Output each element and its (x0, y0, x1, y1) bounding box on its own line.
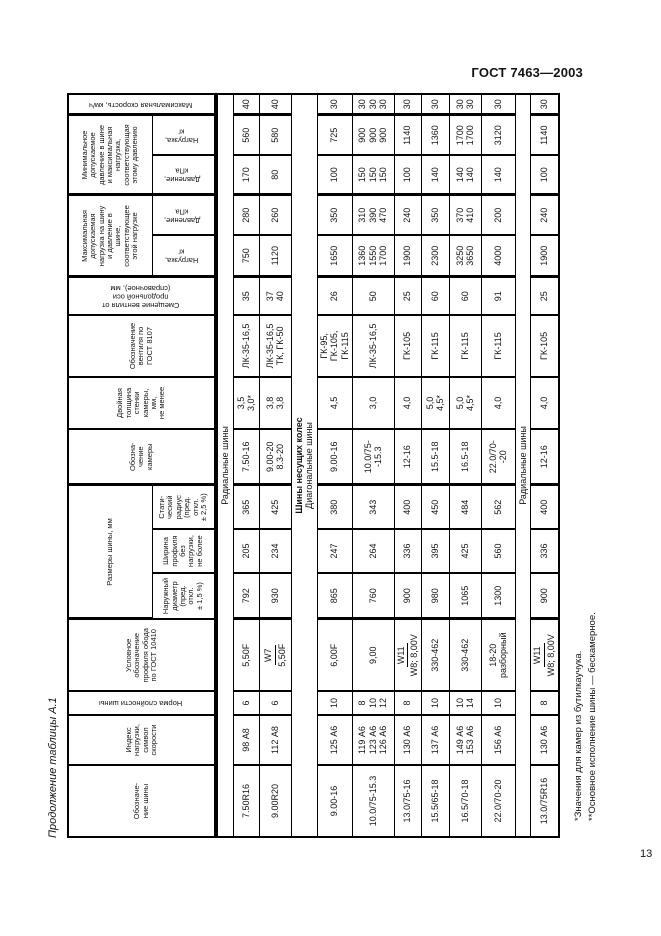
table-row: 16.5/70-18149 А6 153 А610 14330-46210654… (449, 94, 481, 837)
cell: 750 (233, 235, 259, 277)
standard-reference: ГОСТ 7463—2003 (0, 65, 583, 80)
cell: W75,50F (259, 619, 291, 691)
cell: 350 (421, 195, 449, 235)
cell: 130 А6 (531, 715, 559, 765)
cell: 9,00 (352, 619, 394, 691)
cell: 60 (421, 277, 449, 315)
cell: W11W8; 8,00V (394, 619, 421, 691)
section-row: Радиальные шины (515, 94, 531, 837)
cell: 15.5/65-18 (421, 765, 449, 837)
cell: 1700 1700 (449, 115, 481, 155)
footnotes: *Значения для камер из бутилкаучука. **О… (572, 94, 601, 838)
cell: 1900 (394, 235, 421, 277)
cell: 170 (233, 155, 259, 195)
cell: 205 (233, 529, 259, 573)
cell: 3,0 (352, 377, 394, 429)
cell: 60 (449, 277, 481, 315)
cell: 240 (531, 195, 559, 235)
table-row: 7.50R1698 А865,50F7922053657.50-163,5 3,… (233, 94, 259, 837)
cell: 930 (259, 573, 291, 619)
cell: 5,0 4,5* (421, 377, 449, 429)
section-row: Шины несущих колесДиагональные шины (291, 94, 317, 837)
cell: 1300 (481, 573, 515, 619)
cell: 26 (317, 277, 352, 315)
cell: 15.5-18 (421, 429, 449, 485)
header-min-load-kg: Нагрузка, кг (152, 115, 216, 155)
cell: 10 (481, 691, 515, 715)
cell: 4,0 (394, 377, 421, 429)
header-min-pressure-group: Минимальное допускаемое давление в шине … (68, 115, 152, 195)
cell: 310 390 470 (352, 195, 394, 235)
cell: 725 (317, 115, 352, 155)
cell: 336 (531, 529, 559, 573)
cell: 22.0/70-20 (481, 765, 515, 837)
tire-spec-table: Обозначе- ние шины Индекс нагрузки, симв… (67, 93, 560, 838)
cell: 125 А6 (317, 715, 352, 765)
cell: 150 150 150 (352, 155, 394, 195)
cell: 3120 (481, 115, 515, 155)
header-rim-profile: Условное обозначение профиля обода по ГО… (68, 619, 216, 691)
header-tire-designation: Обозначе- ние шины (68, 765, 216, 837)
cell: 130 А6 (394, 715, 421, 765)
cell: 1900 (531, 235, 559, 277)
cell: 240 (394, 195, 421, 235)
footnote-tubeless: **Основное исполнение шины — бескамерное… (586, 94, 601, 821)
table-row: 15.5/65-18137 А610330-46298039545015.5-1… (421, 94, 449, 837)
cell: 9.00-16 (317, 429, 352, 485)
table-row: 22.0/70-20156 А61018-20 разборный1300560… (481, 94, 515, 837)
table-body: Радиальные шины7.50R1698 А865,50F7922053… (216, 94, 559, 837)
cell: 25 (394, 277, 421, 315)
cell: 2300 (421, 235, 449, 277)
cell: 4,5 (317, 377, 352, 429)
cell: 98 А8 (233, 715, 259, 765)
cell: ГК-95, ГК-105, ГК-115 (317, 315, 352, 377)
header-tube-designation: Обозна- чение камеры (68, 429, 216, 485)
cell: 7.50R16 (233, 765, 259, 837)
cell: 260 (259, 195, 291, 235)
cell: 13.0/75-16 (394, 765, 421, 837)
header-max-speed: Максимальная скорость, км/ч (68, 94, 216, 115)
cell: 40 (259, 94, 291, 115)
header-max-pressure-kpa: Давление, кПа (152, 195, 216, 235)
cell: 30 30 30 (352, 94, 394, 115)
section-row: Радиальные шины (216, 94, 233, 837)
cell: 450 (421, 485, 449, 529)
cell: 4,0 (531, 377, 559, 429)
cell: 264 (352, 529, 394, 573)
cell: 25 (531, 277, 559, 315)
cell: 1360 (421, 115, 449, 155)
cell: ГК-115 (449, 315, 481, 377)
cell: 792 (233, 573, 259, 619)
cell: 900 (531, 573, 559, 619)
cell: 3,5 3,0* (233, 377, 259, 429)
cell: 247 (317, 529, 352, 573)
cell: 7.50-16 (233, 429, 259, 485)
cell: 16.5/70-18 (449, 765, 481, 837)
cell: 760 (352, 573, 394, 619)
cell: 16.5-18 (449, 429, 481, 485)
cell: 560 (233, 115, 259, 155)
table-row: 10.0/75-15.3119 А6 123 А6 126 А68 10 129… (352, 94, 394, 837)
header-valve-offset: Смещение вентиля от продольной оси (спра… (68, 277, 216, 315)
cell: 6 (259, 691, 291, 715)
header-load-index: Индекс нагрузки, символ скорости (68, 715, 216, 765)
header-outer-diameter: Наружный диаметр (пред. откл. ± 1,5 %) (152, 573, 216, 619)
page-number: 13 (640, 848, 652, 860)
cell: 343 (352, 485, 394, 529)
cell: 200 (481, 195, 515, 235)
cell: 112 А8 (259, 715, 291, 765)
cell: 119 А6 123 А6 126 А6 (352, 715, 394, 765)
cell: 580 (259, 115, 291, 155)
table-row: 13.0/75R16130 А68W11W8; 8,00V90033640012… (531, 94, 559, 837)
cell: 100 (394, 155, 421, 195)
cell: 156 А6 (481, 715, 515, 765)
cell: ГК-105 (394, 315, 421, 377)
section-title: Шины несущих колесДиагональные шины (291, 94, 317, 837)
cell: 30 (481, 94, 515, 115)
cell: 234 (259, 529, 291, 573)
cell: 380 (317, 485, 352, 529)
cell: 30 30 (449, 94, 481, 115)
cell: 9.00R20 (259, 765, 291, 837)
cell: 10 (421, 691, 449, 715)
cell: 137 А6 (421, 715, 449, 765)
cell: 1065 (449, 573, 481, 619)
cell: 40 (233, 94, 259, 115)
cell: 484 (449, 485, 481, 529)
cell: 6,00F (317, 619, 352, 691)
cell: 8 10 12 (352, 691, 394, 715)
cell: 12-16 (531, 429, 559, 485)
cell: 5,0 4,5* (449, 377, 481, 429)
cell: 4,0 (481, 377, 515, 429)
cell: 4000 (481, 235, 515, 277)
cell: 30 (394, 94, 421, 115)
cell: 8 (394, 691, 421, 715)
cell: 10.0/75-15.3 (352, 765, 394, 837)
table-row: 13.0/75-16130 А68W11W8; 8,00V90033640012… (394, 94, 421, 837)
cell: 1120 (259, 235, 291, 277)
table-header: Обозначе- ние шины Индекс нагрузки, симв… (68, 94, 216, 837)
cell: 13.0/75R16 (531, 765, 559, 837)
cell: W11W8; 8,00V (531, 619, 559, 691)
cell: 10.0/75- -15.3 (352, 429, 394, 485)
cell: ЛК-35-16,5 (352, 315, 394, 377)
cell: 91 (481, 277, 515, 315)
cell: 1140 (394, 115, 421, 155)
cell: 400 (394, 485, 421, 529)
header-tire-dimensions-group: Размеры шины, мм (68, 485, 152, 619)
header-max-load-group: Максимальная допускаемая нагрузка на шин… (68, 195, 152, 277)
cell: ЛК-35-16,5 (233, 315, 259, 377)
cell: 18-20 разборный (481, 619, 515, 691)
cell: 50 (352, 277, 394, 315)
cell: 980 (421, 573, 449, 619)
footnote-butyl: *Значения для камер из бутилкаучука. (572, 94, 587, 821)
cell: 80 (259, 155, 291, 195)
cell: 30 (531, 94, 559, 115)
cell: 330-462 (421, 619, 449, 691)
cell: 900 900 900 (352, 115, 394, 155)
cell: 3,8 3,8 (259, 377, 291, 429)
table-caption: Продолжение таблицы А.1 (47, 94, 63, 838)
cell: 280 (233, 195, 259, 235)
cell: 365 (233, 485, 259, 529)
cell: 8 (531, 691, 559, 715)
cell: 3250 3650 (449, 235, 481, 277)
cell: 30 (421, 94, 449, 115)
cell: 400 (531, 485, 559, 529)
header-min-pressure-kpa: Давление, кПа (152, 155, 216, 195)
cell: 395 (421, 529, 449, 573)
cell: 10 14 (449, 691, 481, 715)
cell: 140 (421, 155, 449, 195)
cell: 140 140 (449, 155, 481, 195)
cell: 900 (394, 573, 421, 619)
cell: 100 (317, 155, 352, 195)
cell: 5,50F (233, 619, 259, 691)
cell: ЛК-35-16,5 ТК, ГК-50 (259, 315, 291, 377)
header-static-radius: Стати- ческий радиус (пред. откл. ± 2,5 … (152, 485, 216, 529)
header-ply-rating: Норма слойности шины (68, 691, 216, 715)
cell: 425 (449, 529, 481, 573)
cell: ГК-105 (531, 315, 559, 377)
document-page: ГОСТ 7463—2003 Продолжение таблицы А.1 О… (0, 0, 661, 936)
cell: 22.0/70- -20 (481, 429, 515, 485)
cell: 560 (481, 529, 515, 573)
header-tube-wall-thickness: Двойная толщина стенки камеры, мм, не ме… (68, 377, 216, 429)
cell: 1360 1550 1700 (352, 235, 394, 277)
cell: 330-462 (449, 619, 481, 691)
cell: 562 (481, 485, 515, 529)
cell: ГК-115 (421, 315, 449, 377)
cell: 425 (259, 485, 291, 529)
rotated-table-block: Продолжение таблицы А.1 Обозначе- ние ши… (47, 94, 627, 838)
cell: 149 А6 153 А6 (449, 715, 481, 765)
section-title: Радиальные шины (216, 94, 233, 837)
section-title: Радиальные шины (515, 94, 531, 837)
cell: 9.00-16 (317, 765, 352, 837)
cell: 1650 (317, 235, 352, 277)
header-max-load-kg: Нагрузка, кг (152, 235, 216, 277)
cell: 100 (531, 155, 559, 195)
table-row: 9.00-16125 А6106,00F8652473809.00-164,5Г… (317, 94, 352, 837)
header-profile-width: Ширина профиля без нагрузки, не более (152, 529, 216, 573)
cell: 37 40 (259, 277, 291, 315)
cell: ГК-115 (481, 315, 515, 377)
table-row: 9.00R20112 А86W75,50F9302344259.00-20 8.… (259, 94, 291, 837)
cell: 6 (233, 691, 259, 715)
header-valve-designation: Обозначение вентиля по ГОСТ 8107 (68, 315, 216, 377)
cell: 30 (317, 94, 352, 115)
cell: 9.00-20 8.3-20 (259, 429, 291, 485)
cell: 140 (481, 155, 515, 195)
cell: 336 (394, 529, 421, 573)
cell: 12-16 (394, 429, 421, 485)
cell: 1140 (531, 115, 559, 155)
cell: 370 410 (449, 195, 481, 235)
cell: 350 (317, 195, 352, 235)
cell: 865 (317, 573, 352, 619)
cell: 10 (317, 691, 352, 715)
cell: 35 (233, 277, 259, 315)
